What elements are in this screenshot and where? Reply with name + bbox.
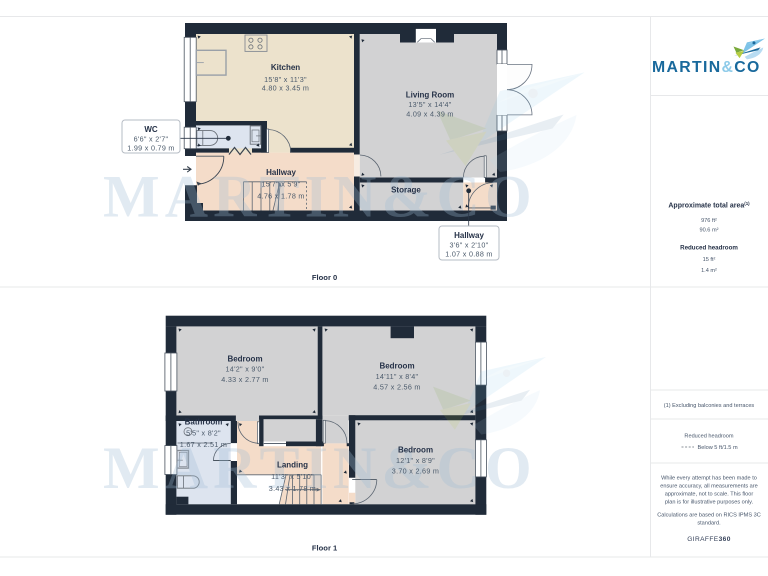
svg-text:4.76 x 1.78 m: 4.76 x 1.78 m [257, 192, 304, 201]
svg-text:WC: WC [144, 125, 158, 134]
svg-text:(1) Excluding balconies and te: (1) Excluding balconies and terraces [664, 403, 755, 409]
svg-text:15 ft²: 15 ft² [703, 257, 716, 263]
svg-text:Living Room: Living Room [406, 90, 454, 99]
svg-text:Calculations are based on RICS: Calculations are based on RICS IPMS 3C [657, 513, 761, 519]
svg-text:Below 5 ft/1.5 m: Below 5 ft/1.5 m [698, 445, 738, 451]
svg-text:1.4 m²: 1.4 m² [701, 268, 717, 274]
svg-text:3.43 x 1.78 m: 3.43 x 1.78 m [269, 484, 316, 493]
svg-text:Hallway: Hallway [454, 231, 484, 240]
svg-text:MARTIN&CO: MARTIN&CO [103, 164, 537, 230]
svg-text:Bedroom: Bedroom [227, 354, 262, 363]
svg-text:976 ft²: 976 ft² [701, 218, 717, 224]
svg-text:MARTIN&CO: MARTIN&CO [652, 59, 761, 76]
svg-text:4.09 x 4.39 m: 4.09 x 4.39 m [406, 110, 453, 119]
svg-text:Kitchen: Kitchen [271, 63, 300, 72]
svg-text:14'2" x 9'0": 14'2" x 9'0" [225, 365, 264, 374]
svg-text:4.80 x 3.45 m: 4.80 x 3.45 m [262, 84, 309, 93]
svg-text:ensure accuracy, all measureme: ensure accuracy, all measurements are [660, 484, 758, 490]
svg-text:plan is for illustrative purpo: plan is for illustrative purposes only. [665, 500, 754, 506]
svg-text:1.99 x 0.79 m: 1.99 x 0.79 m [127, 144, 174, 153]
svg-text:14'11" x 8'4": 14'11" x 8'4" [376, 372, 419, 381]
svg-text:While every attempt has been m: While every attempt has been made to [661, 476, 757, 482]
svg-text:12'1" x 8'9": 12'1" x 8'9" [396, 456, 435, 465]
svg-text:1.67 x 2.51 m: 1.67 x 2.51 m [180, 440, 227, 449]
svg-text:3.70 x 2.69 m: 3.70 x 2.69 m [392, 467, 439, 476]
svg-text:4.33 x 2.77 m: 4.33 x 2.77 m [221, 375, 268, 384]
svg-text:Landing: Landing [277, 460, 308, 469]
svg-text:Bedroom: Bedroom [379, 361, 414, 370]
svg-text:Floor 0: Floor 0 [312, 273, 337, 282]
svg-text:5'5" x 8'2": 5'5" x 8'2" [186, 429, 221, 438]
svg-text:Reduced headroom: Reduced headroom [680, 245, 738, 252]
svg-text:15'7" x 5'9": 15'7" x 5'9" [261, 180, 300, 189]
svg-text:Bathroom: Bathroom [185, 417, 223, 426]
svg-text:4.57 x 2.56 m: 4.57 x 2.56 m [373, 383, 420, 392]
svg-text:1.07 x 0.88 m: 1.07 x 0.88 m [445, 250, 492, 259]
svg-text:Bedroom: Bedroom [398, 445, 433, 454]
svg-text:11'3" x 5'10": 11'3" x 5'10" [271, 472, 314, 481]
svg-text:MARTIN&CO: MARTIN&CO [103, 435, 537, 501]
svg-text:Approximate total area(1): Approximate total area(1) [668, 201, 750, 210]
svg-text:Floor 1: Floor 1 [312, 544, 338, 553]
svg-text:13'5" x 14'4": 13'5" x 14'4" [408, 100, 451, 109]
svg-text:standard.: standard. [697, 521, 721, 527]
svg-text:Reduced headroom: Reduced headroom [684, 434, 733, 440]
svg-text:6'6" x 2'7": 6'6" x 2'7" [134, 135, 169, 144]
svg-text:GIRAFFE360: GIRAFFE360 [687, 536, 731, 543]
svg-text:3'6" x 2'10": 3'6" x 2'10" [449, 241, 488, 250]
svg-text:Storage: Storage [391, 185, 421, 194]
svg-text:approximate, not to scale. Thi: approximate, not to scale. This floor [665, 492, 754, 498]
svg-text:Hallway: Hallway [266, 168, 296, 177]
svg-text:90.6 m²: 90.6 m² [700, 228, 719, 234]
